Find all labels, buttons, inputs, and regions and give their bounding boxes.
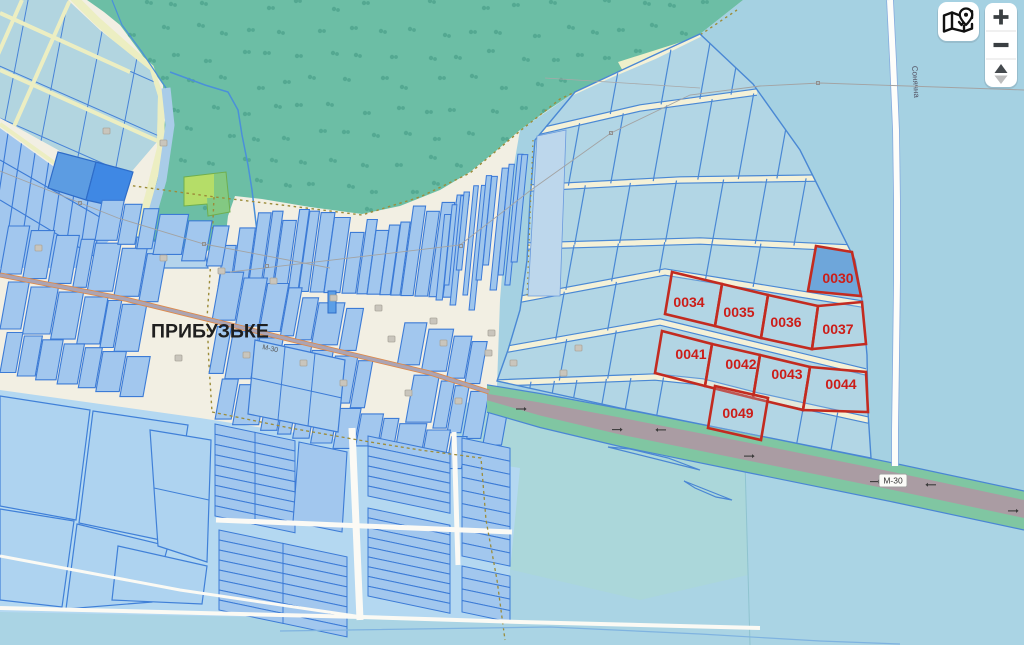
svg-text:0049: 0049 [722,405,753,421]
svg-text:0035: 0035 [723,304,754,320]
svg-text:0034: 0034 [673,294,704,310]
svg-text:0043: 0043 [771,366,802,382]
svg-text:0036: 0036 [770,314,801,330]
svg-text:0041: 0041 [675,346,706,362]
svg-text:0042: 0042 [725,356,756,372]
svg-text:ПРИБУЗЬКЕ: ПРИБУЗЬКЕ [151,321,269,343]
svg-text:М-30: М-30 [883,476,903,486]
svg-text:0030: 0030 [822,270,853,286]
svg-text:0044: 0044 [825,376,856,392]
svg-text:0037: 0037 [822,321,853,337]
